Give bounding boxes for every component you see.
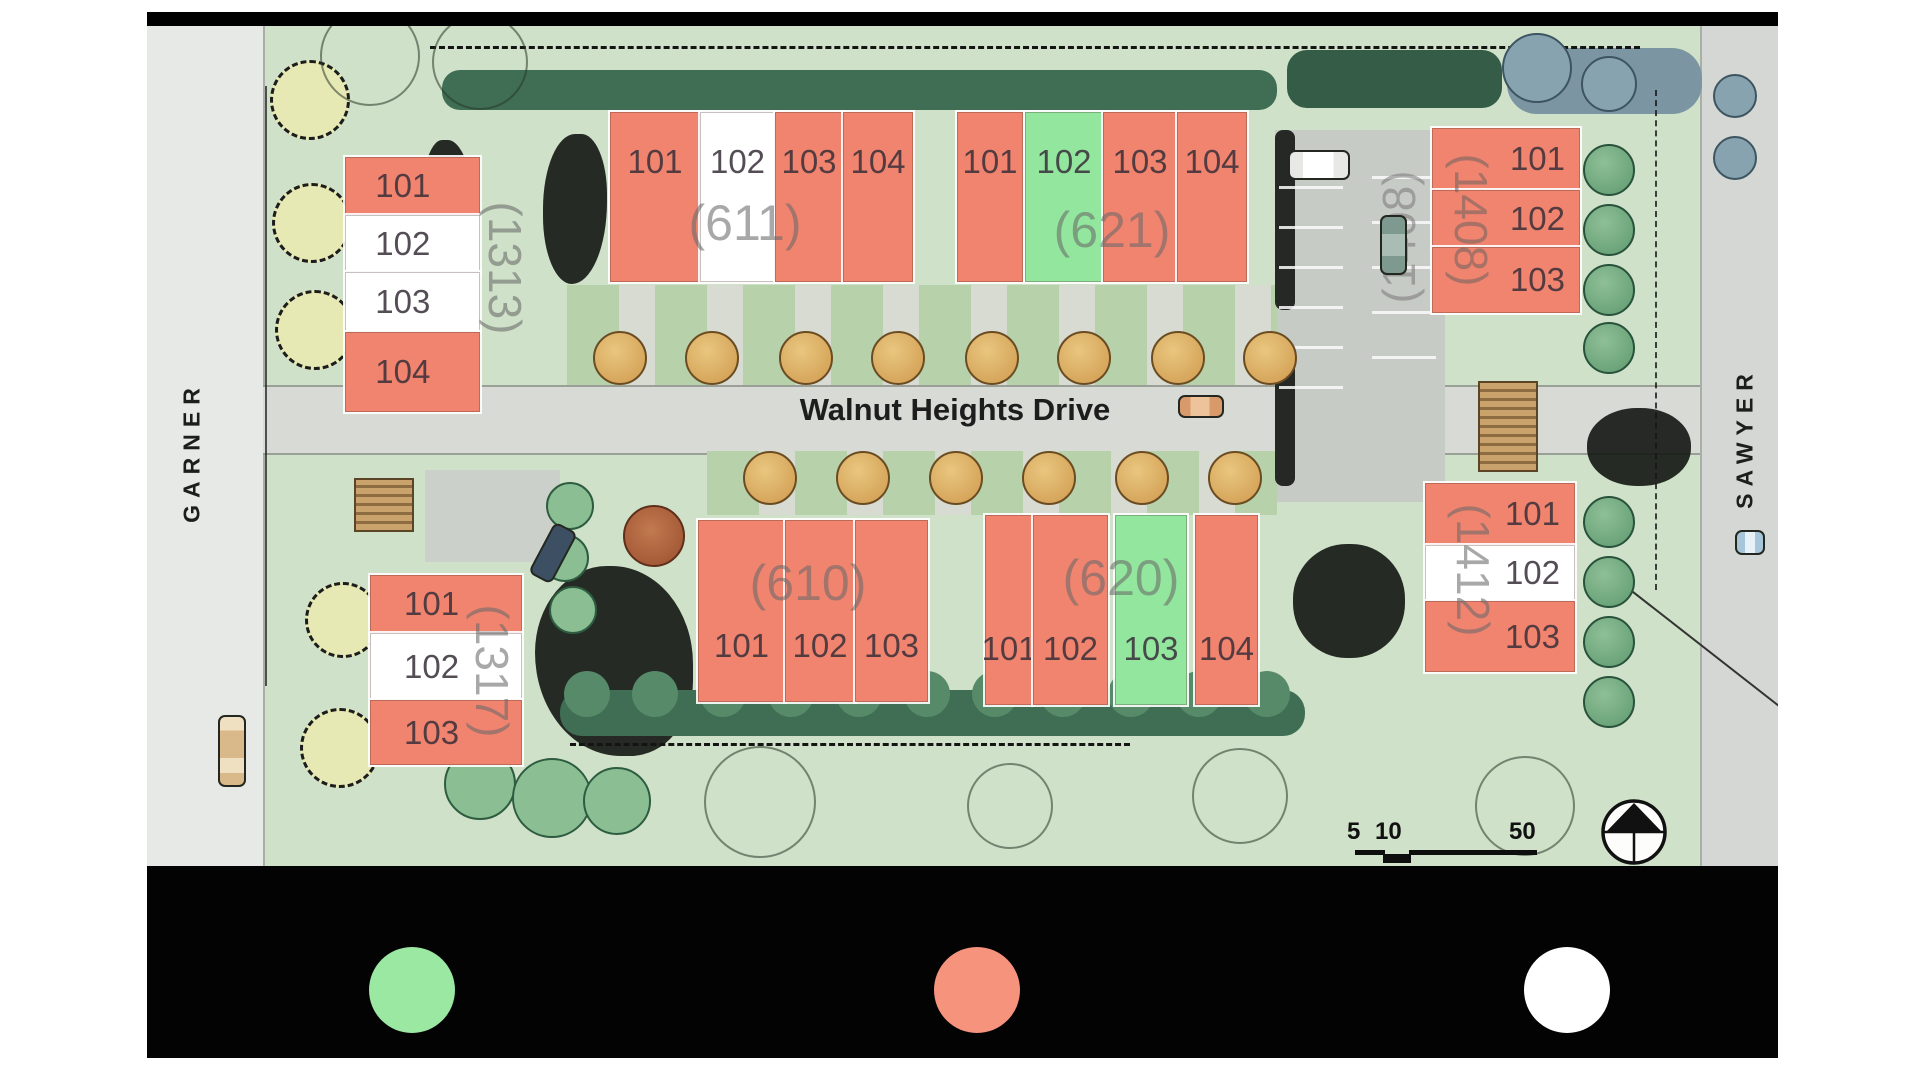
tree-icon (929, 451, 983, 505)
car (1735, 530, 1765, 555)
hedge-row-top-right (1287, 50, 1502, 108)
building-label-1313: (1313) (478, 202, 532, 335)
car (1178, 395, 1224, 418)
bush-icon (546, 482, 594, 530)
unit-621-101[interactable]: 101 (957, 112, 1023, 282)
tree-icon (704, 746, 816, 858)
car (1380, 215, 1407, 275)
unit-1313-104[interactable]: 104 (345, 332, 480, 412)
property-line-bottom (570, 743, 1130, 746)
scale-bar-segment (1383, 854, 1411, 863)
site-plan-page: GARNER SAWYER Walnut Heights Drive 101 1… (147, 12, 1778, 1068)
tree-icon (1581, 56, 1637, 112)
tree-icon (1583, 322, 1635, 374)
tree-icon (1583, 616, 1635, 668)
unit-number: 104 (850, 143, 905, 181)
scale-tick-label: 50 (1509, 818, 1536, 846)
parking-stall-line (1279, 186, 1343, 189)
car (1288, 150, 1350, 180)
street-label-garner: GARNER (179, 381, 206, 523)
unit-number: 101 (1510, 140, 1565, 178)
unit-number: 102 (710, 143, 765, 181)
legend-swatch-green (369, 947, 455, 1033)
building-label-1317: (1317) (465, 605, 519, 738)
north-arrow-icon (1599, 797, 1669, 866)
unit-number: 103 (1505, 618, 1560, 656)
building-label-1408: (1408) (1444, 154, 1498, 287)
tree-icon (1115, 451, 1169, 505)
tree-icon (1583, 556, 1635, 608)
legend-bar (147, 866, 1778, 1058)
scale-bar-segment (1409, 850, 1537, 855)
unit-number: 102 (1036, 143, 1091, 181)
tree-icon (1713, 74, 1757, 118)
building-label-610: (610) (750, 554, 867, 612)
tree-icon (871, 331, 925, 385)
unit-number: 102 (375, 225, 430, 263)
unit-number: 103 (1123, 630, 1178, 668)
scale-tick-label: 10 (1375, 818, 1402, 846)
unit-number: 103 (864, 627, 919, 665)
tree-icon (593, 331, 647, 385)
building-label-1412: (1412) (1446, 504, 1500, 637)
tree-icon (1243, 331, 1297, 385)
building-label-621: (621) (1054, 201, 1171, 259)
building-label-620: (620) (1063, 549, 1180, 607)
planting-bed (543, 134, 607, 284)
tree-icon (1583, 264, 1635, 316)
unit-620-104[interactable]: 104 (1195, 515, 1258, 705)
unit-621-104[interactable]: 104 (1177, 112, 1247, 282)
building-620: 101 102 103 104 (985, 515, 1258, 705)
unit-1313-103[interactable]: 103 (345, 272, 480, 332)
parking-stall-line (1279, 266, 1343, 269)
property-line-top (430, 46, 1640, 49)
property-line-left (265, 86, 267, 686)
tree-icon (836, 451, 890, 505)
unit-number: 103 (781, 143, 836, 181)
hedge-row-top (442, 70, 1277, 110)
unit-number: 104 (1199, 630, 1254, 668)
scale-tick-label: 5 (1347, 818, 1360, 846)
unit-number: 101 (981, 630, 1036, 668)
property-line-right (1655, 90, 1657, 590)
unit-number: 103 (1510, 261, 1565, 299)
unit-number: 102 (792, 627, 847, 665)
tree-icon (1713, 136, 1757, 180)
unit-620-103[interactable]: 103 (1115, 515, 1187, 705)
parking-stall-line (1372, 356, 1436, 359)
tree-icon (1208, 451, 1262, 505)
unit-number: 101 (375, 167, 430, 205)
tree-icon (1151, 331, 1205, 385)
legend-swatch-salmon (934, 947, 1020, 1033)
planting-bed (1293, 544, 1405, 658)
car (218, 715, 246, 787)
unit-number: 101 (404, 585, 459, 623)
building-1313: 101 102 103 104 (345, 157, 480, 412)
bush-icon (564, 671, 610, 717)
parking-stall-line (1279, 306, 1343, 309)
planting-bed (1587, 408, 1691, 486)
unit-1313-102[interactable]: 102 (345, 215, 480, 272)
road-garner (147, 26, 265, 866)
unit-number: 101 (714, 627, 769, 665)
unit-611-104[interactable]: 104 (843, 112, 913, 282)
unit-number: 104 (1184, 143, 1239, 181)
deck (354, 478, 414, 532)
unit-number: 104 (375, 353, 430, 391)
unit-number: 102 (1043, 630, 1098, 668)
tree-icon (685, 331, 739, 385)
street-label-sawyer: SAWYER (1732, 367, 1759, 509)
street-label-walnut-heights-drive: Walnut Heights Drive (800, 392, 1111, 428)
tree-icon (965, 331, 1019, 385)
unit-number: 102 (1505, 554, 1560, 592)
tree-icon (300, 708, 380, 788)
legend-swatch-white (1524, 947, 1610, 1033)
building-label-611: (611) (688, 194, 801, 252)
bush-icon (549, 586, 597, 634)
tree-icon (779, 331, 833, 385)
parking-stall-line (1279, 386, 1343, 389)
tree-icon (1192, 748, 1288, 844)
unit-number: 101 (1505, 495, 1560, 533)
bush-icon (632, 671, 678, 717)
tree-icon (623, 505, 685, 567)
tree-icon (1502, 33, 1572, 103)
site-map: GARNER SAWYER Walnut Heights Drive 101 1… (147, 26, 1778, 866)
unit-number: 103 (1112, 143, 1167, 181)
unit-611-101[interactable]: 101 (610, 112, 700, 282)
tree-icon (743, 451, 797, 505)
tree-icon (1583, 204, 1635, 256)
tree-icon (1057, 331, 1111, 385)
parking-stall-line (1279, 226, 1343, 229)
unit-number: 101 (627, 143, 682, 181)
scale-bar-segment (1355, 850, 1385, 855)
tree-icon (275, 290, 355, 370)
unit-1313-101[interactable]: 101 (345, 157, 480, 215)
tree-icon (1022, 451, 1076, 505)
unit-620-102[interactable]: 102 (1033, 515, 1108, 705)
unit-number: 102 (1510, 200, 1565, 238)
tree-icon (967, 763, 1053, 849)
unit-number: 103 (404, 714, 459, 752)
unit-number: 103 (375, 283, 430, 321)
tree-icon (1583, 496, 1635, 548)
deck (1478, 381, 1538, 472)
unit-number: 101 (962, 143, 1017, 181)
tree-icon (1583, 676, 1635, 728)
bush-icon (583, 767, 651, 835)
tree-icon (1583, 144, 1635, 196)
bush-icon (512, 758, 592, 838)
parking-stall-line (1372, 311, 1436, 314)
tree-icon (272, 183, 352, 263)
unit-number: 102 (404, 648, 459, 686)
unit-620-101[interactable]: 101 (985, 515, 1033, 705)
top-border-bar (147, 12, 1778, 26)
